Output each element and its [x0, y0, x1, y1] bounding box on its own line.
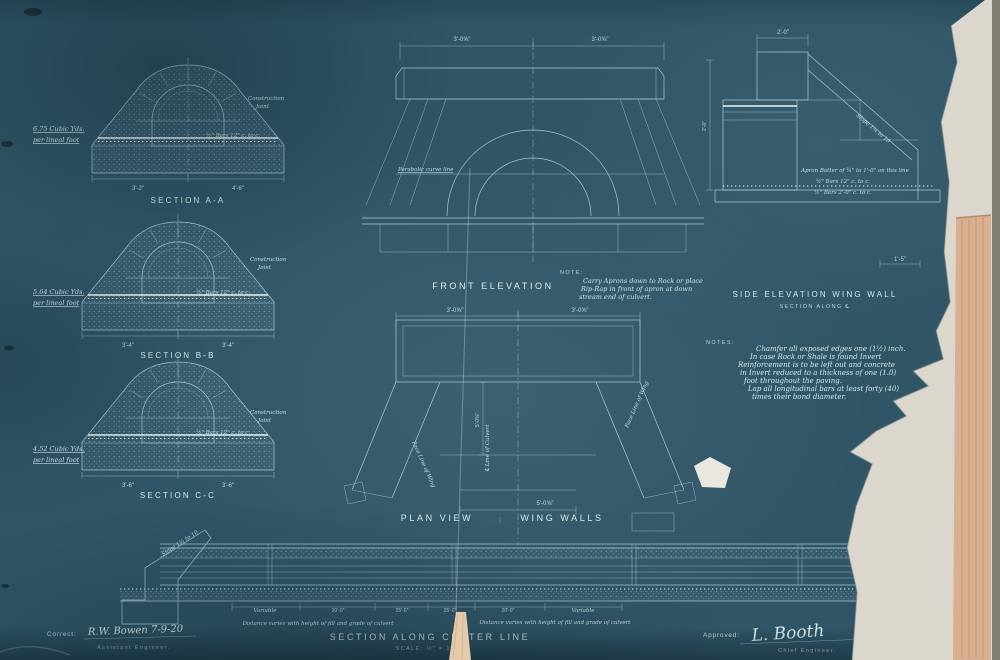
bottom-tape-strip [449, 612, 471, 660]
tear-hole [694, 457, 731, 488]
scratch-mark [456, 168, 470, 612]
blueprint-sheet: 6.75 Cubic Yds. per lineal foot ½" Bars … [0, 0, 1000, 660]
tape-strip [953, 215, 991, 660]
paper-damage-layer [0, 0, 1000, 660]
backing-edge-strip [992, 0, 1000, 660]
edge-marks [1, 8, 42, 588]
corner-crease [0, 647, 70, 655]
